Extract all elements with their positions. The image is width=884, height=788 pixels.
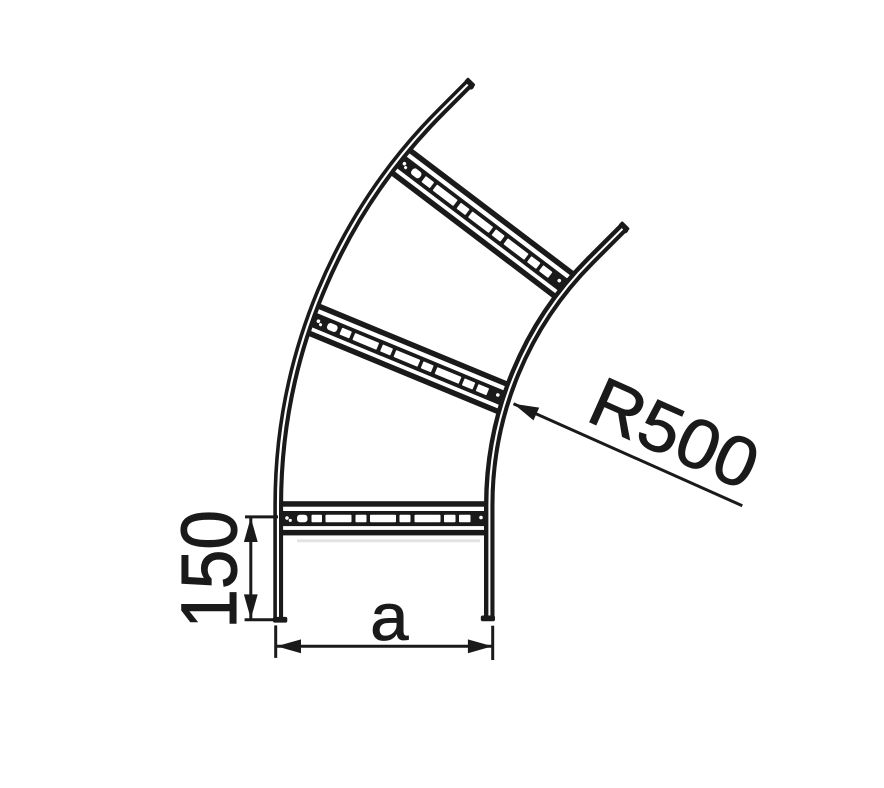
svg-text:a: a [370,580,409,655]
svg-text:150: 150 [165,510,253,628]
